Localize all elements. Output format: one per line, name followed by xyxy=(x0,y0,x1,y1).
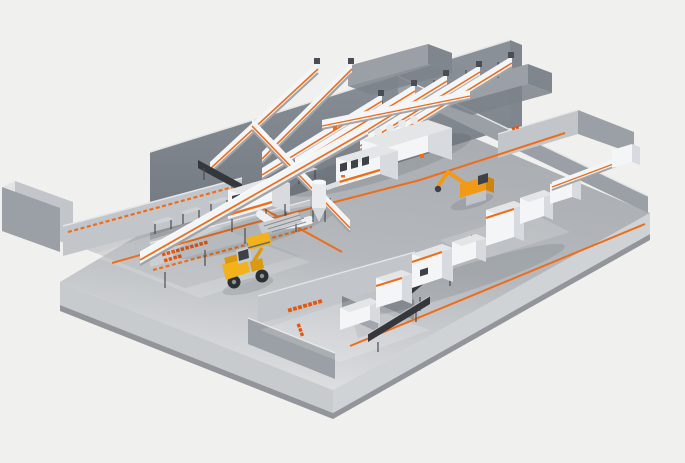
sensor-light-1 xyxy=(333,126,337,130)
cabin2-logo xyxy=(341,175,345,178)
excavator-grapple xyxy=(435,186,441,192)
plant-3d-render: ■■■■■■■■■■ ■■■■ ■■■■■■■ ■■■ ■■ xyxy=(0,0,685,463)
sensor-light-2 xyxy=(420,154,424,158)
plant-scene-svg: ■■■■■■■■■■ ■■■■ ■■■■■■■ ■■■ ■■ xyxy=(0,0,685,463)
